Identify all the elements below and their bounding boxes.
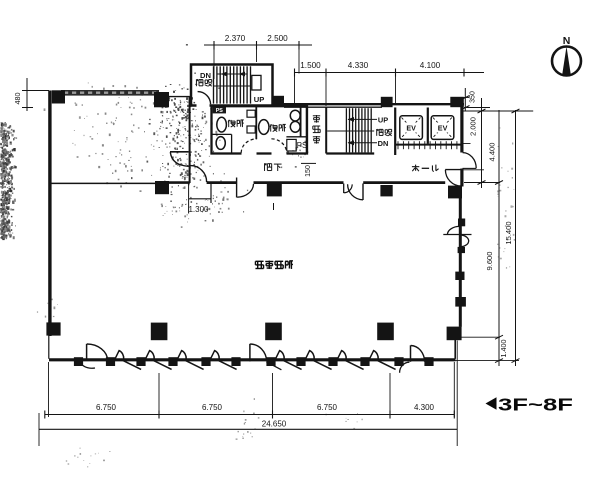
svg-text:350: 350 bbox=[470, 91, 477, 103]
svg-text:9.600: 9.600 bbox=[485, 251, 494, 270]
svg-text:1.400: 1.400 bbox=[499, 340, 508, 358]
svg-text:4.100: 4.100 bbox=[420, 61, 441, 70]
svg-text:4.300: 4.300 bbox=[414, 403, 435, 412]
svg-text:DN: DN bbox=[378, 139, 389, 148]
svg-text:2.000: 2.000 bbox=[469, 117, 478, 136]
svg-text:2.500: 2.500 bbox=[267, 34, 288, 43]
svg-text:PS: PS bbox=[216, 108, 224, 114]
svg-text:UP: UP bbox=[254, 95, 265, 104]
svg-text:3F~8F: 3F~8F bbox=[498, 395, 573, 415]
svg-text:6.750: 6.750 bbox=[317, 403, 338, 412]
svg-text:2.370: 2.370 bbox=[225, 34, 246, 43]
svg-text:1.300: 1.300 bbox=[188, 205, 209, 214]
svg-text:6.750: 6.750 bbox=[202, 403, 223, 412]
svg-text:4.330: 4.330 bbox=[348, 61, 369, 70]
svg-text:480: 480 bbox=[13, 93, 22, 105]
svg-text:6.750: 6.750 bbox=[96, 403, 117, 412]
svg-text:24.650: 24.650 bbox=[262, 420, 287, 429]
svg-text:DN: DN bbox=[200, 71, 211, 80]
svg-text:EV: EV bbox=[406, 124, 416, 133]
svg-text:UP: UP bbox=[378, 115, 388, 124]
svg-text:15.400: 15.400 bbox=[504, 221, 513, 244]
svg-text:150: 150 bbox=[305, 165, 312, 177]
svg-text:EV: EV bbox=[438, 124, 448, 133]
svg-text:PS: PS bbox=[297, 141, 307, 150]
svg-text:1.500: 1.500 bbox=[300, 61, 321, 70]
svg-text:N: N bbox=[563, 35, 571, 47]
svg-text:4.400: 4.400 bbox=[488, 142, 497, 161]
